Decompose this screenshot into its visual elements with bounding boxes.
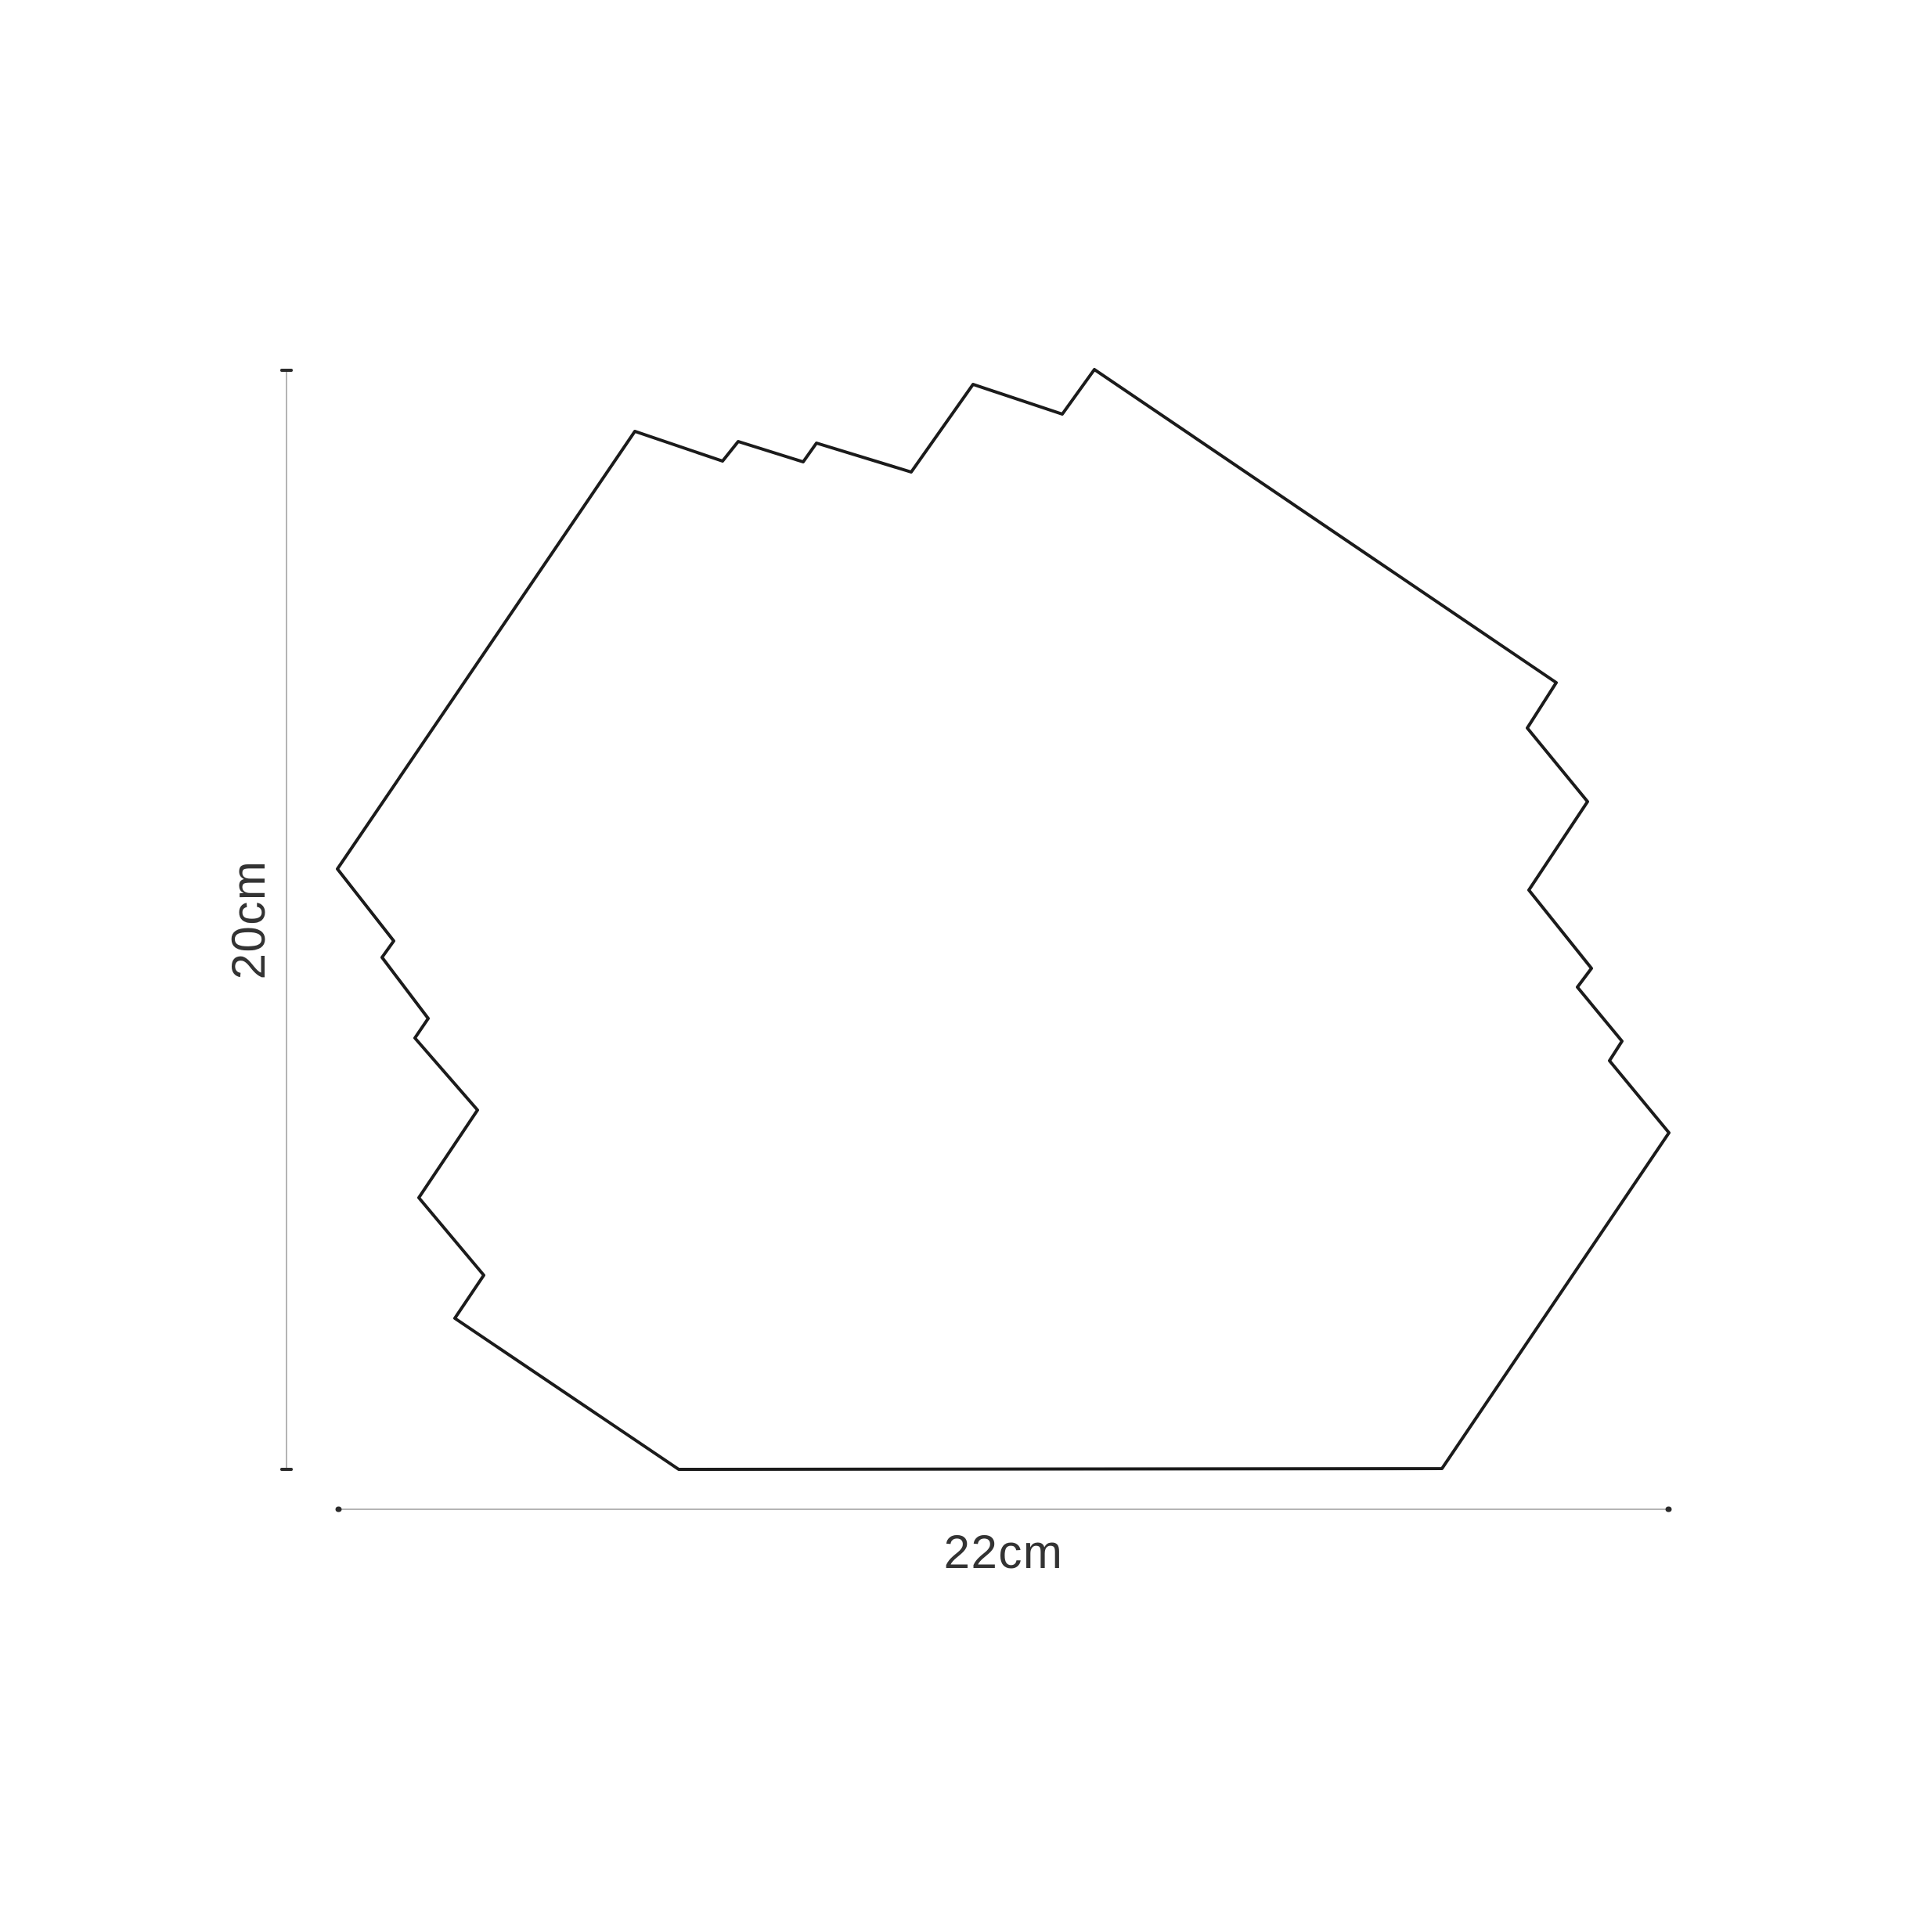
height-dimension-label: 20cm: [222, 860, 275, 980]
width-dimension-label: 22cm: [944, 1526, 1064, 1578]
diagram-svg: 20cm 22cm: [0, 0, 1932, 1932]
panel-outline-shape: [337, 369, 1669, 1469]
dimension-diagram: 20cm 22cm: [0, 0, 1932, 1932]
